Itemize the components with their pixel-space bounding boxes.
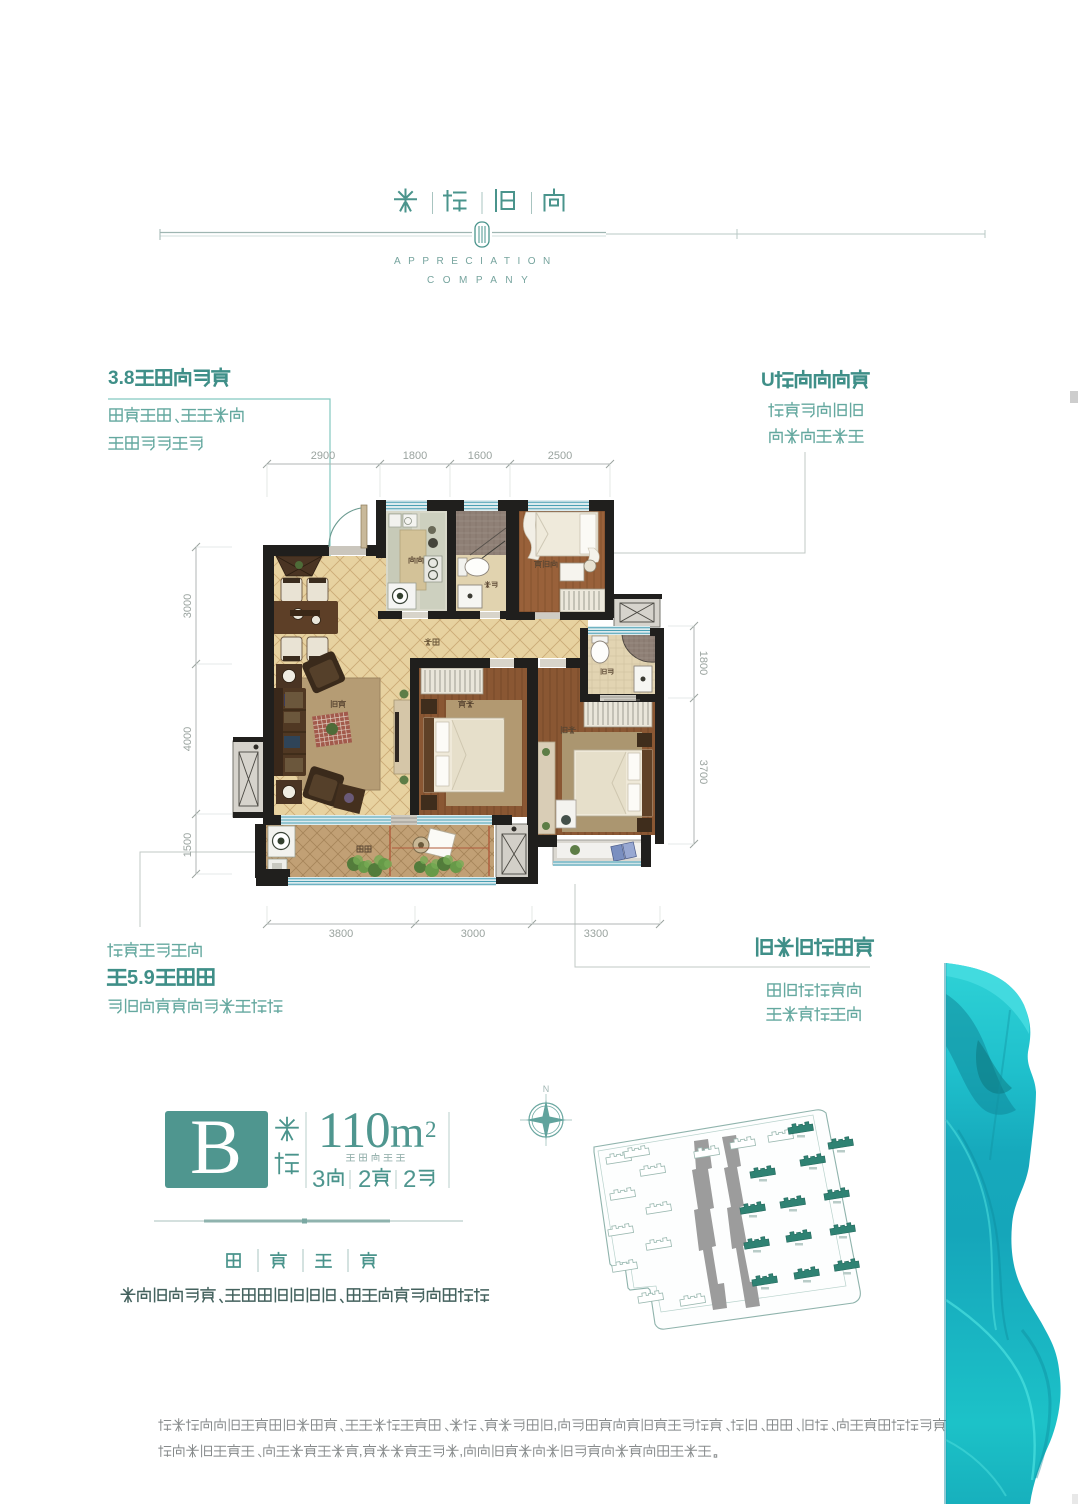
svg-text:1500: 1500 [182, 833, 194, 857]
svg-text:2500: 2500 [548, 450, 572, 462]
svg-text:3: 3 [312, 1166, 325, 1193]
svg-text:B: B [190, 1103, 242, 1190]
svg-text:COMPANY: COMPANY [427, 275, 536, 286]
svg-text:1800: 1800 [697, 651, 709, 675]
svg-text:,: , [359, 1444, 363, 1459]
svg-text:2: 2 [425, 1117, 437, 1142]
svg-text:4000: 4000 [182, 727, 194, 751]
svg-text:2: 2 [358, 1166, 371, 1193]
svg-text:3700: 3700 [697, 760, 709, 784]
svg-text:,: , [459, 1444, 463, 1459]
svg-text:N: N [543, 1084, 550, 1094]
svg-text:m: m [390, 1108, 424, 1157]
svg-text:3300: 3300 [584, 928, 608, 940]
svg-text:3000: 3000 [461, 928, 485, 940]
svg-text:1800: 1800 [403, 450, 427, 462]
svg-text:3800: 3800 [329, 928, 353, 940]
svg-text:2: 2 [403, 1166, 416, 1193]
svg-text:5.9: 5.9 [127, 967, 155, 989]
svg-text:1600: 1600 [468, 450, 492, 462]
svg-text:3000: 3000 [182, 594, 194, 618]
svg-text:,: , [553, 1418, 557, 1433]
svg-text:3.8: 3.8 [108, 368, 134, 389]
svg-text:110: 110 [318, 1103, 390, 1159]
svg-text:APPRECIATION: APPRECIATION [394, 256, 558, 267]
svg-text:U: U [761, 370, 775, 391]
svg-text:2900: 2900 [311, 450, 335, 462]
